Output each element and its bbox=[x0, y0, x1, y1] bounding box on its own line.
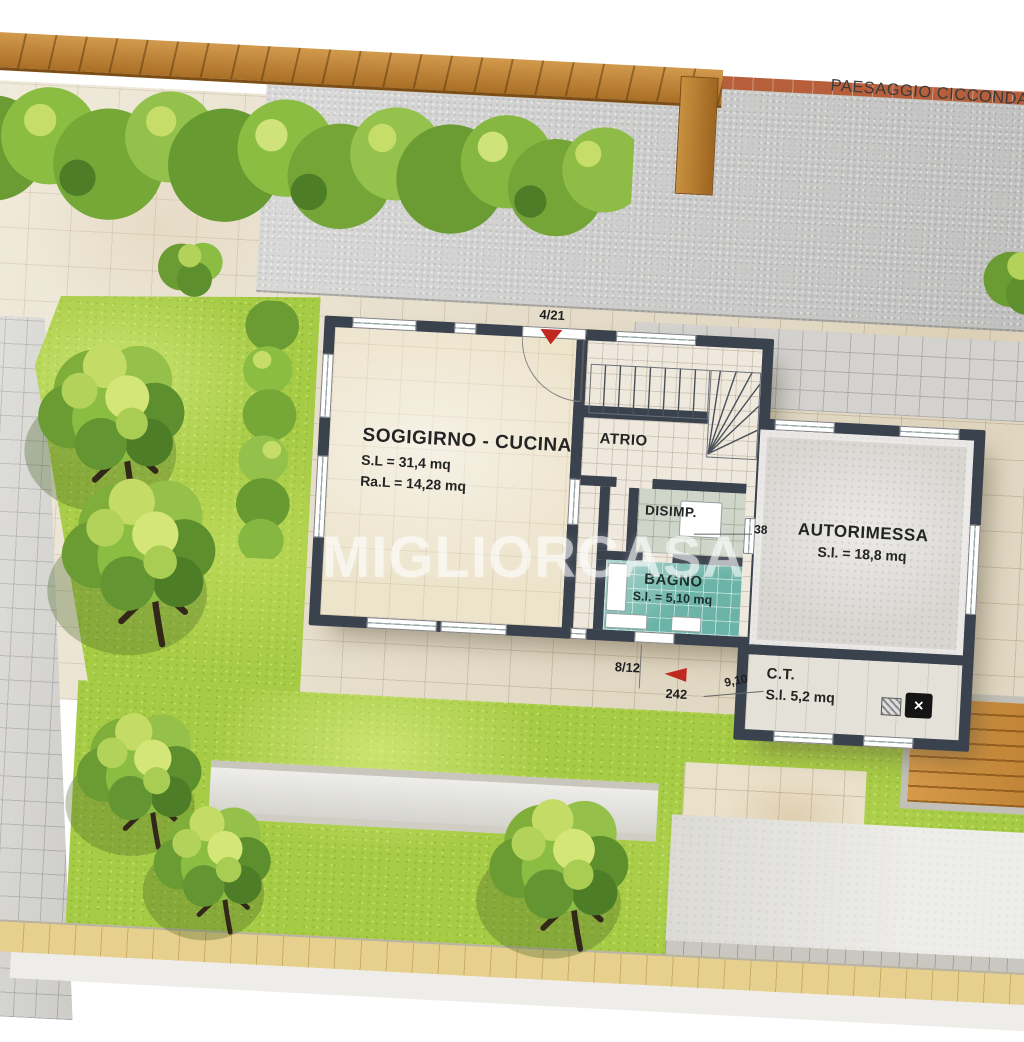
hedge-row bbox=[0, 61, 637, 258]
dim-38: 38 bbox=[754, 522, 768, 537]
x-marker-icon: ✕ bbox=[905, 692, 933, 718]
entry-marker-icon bbox=[540, 329, 563, 345]
driveway bbox=[665, 814, 1024, 963]
hatched-symbol bbox=[881, 697, 902, 716]
bath-fixture bbox=[671, 616, 702, 633]
entry-dimension-label: 4/21 bbox=[521, 306, 584, 324]
dim-242: 242 bbox=[665, 686, 687, 702]
red-arrow-icon bbox=[664, 667, 687, 682]
dim-8-12: 8/12 bbox=[614, 659, 640, 675]
ct-window bbox=[773, 731, 833, 745]
tree bbox=[137, 787, 305, 955]
tree bbox=[469, 776, 669, 976]
site-plan: AREA DI MANOVRA Pegna di Nodsan PAESAGGI… bbox=[0, 18, 1024, 1042]
ct-window bbox=[863, 735, 914, 749]
bush bbox=[972, 232, 1024, 329]
window bbox=[367, 617, 437, 632]
staircase-winder bbox=[706, 370, 762, 461]
soggiorno-label: SOGIGIRNO - CUCINA S.L = 31,4 mq Ra.L = … bbox=[360, 424, 598, 503]
window bbox=[440, 621, 506, 635]
wood-fence-post bbox=[675, 76, 719, 196]
window bbox=[570, 628, 587, 640]
watermark: MIGLIORCASA bbox=[322, 524, 745, 591]
bath-fixture bbox=[605, 613, 648, 630]
tree bbox=[39, 453, 260, 674]
bagno-door-opening bbox=[634, 631, 675, 644]
bush bbox=[148, 226, 234, 308]
staircase-treads bbox=[588, 364, 710, 420]
window bbox=[454, 322, 477, 334]
